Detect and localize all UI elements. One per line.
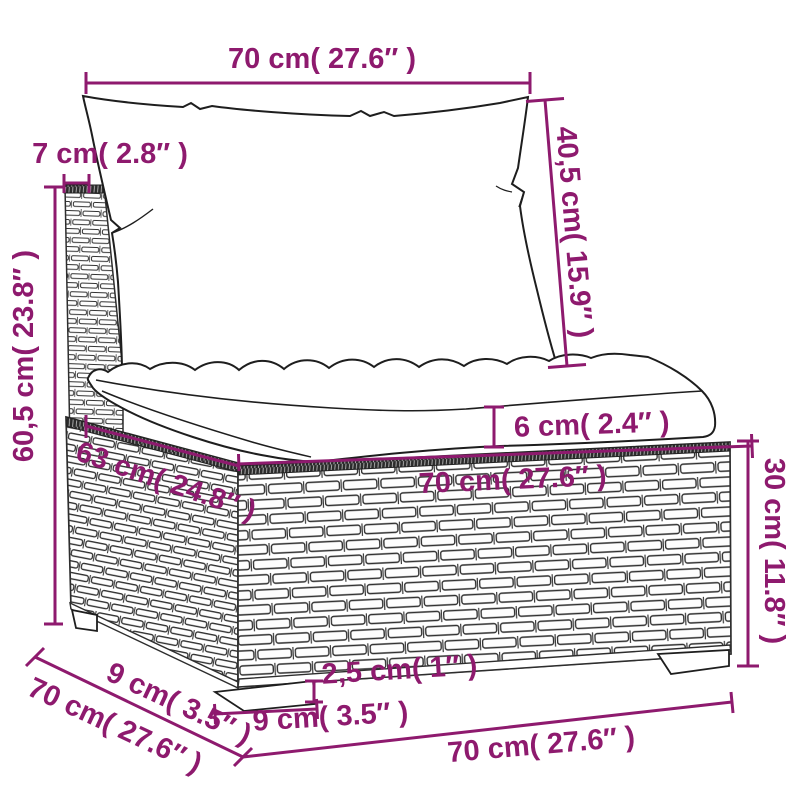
svg-text:7 cm( 2.8″ ): 7 cm( 2.8″ ) <box>32 138 188 170</box>
svg-text:70 cm( 27.6″ ): 70 cm( 27.6″ ) <box>228 43 416 75</box>
svg-text:6 cm( 2.4″ ): 6 cm( 2.4″ ) <box>513 406 670 443</box>
svg-text:60,5 cm( 23.8″ ): 60,5 cm( 23.8″ ) <box>8 250 40 462</box>
svg-text:30 cm( 11.8″ ): 30 cm( 11.8″ ) <box>758 458 790 644</box>
